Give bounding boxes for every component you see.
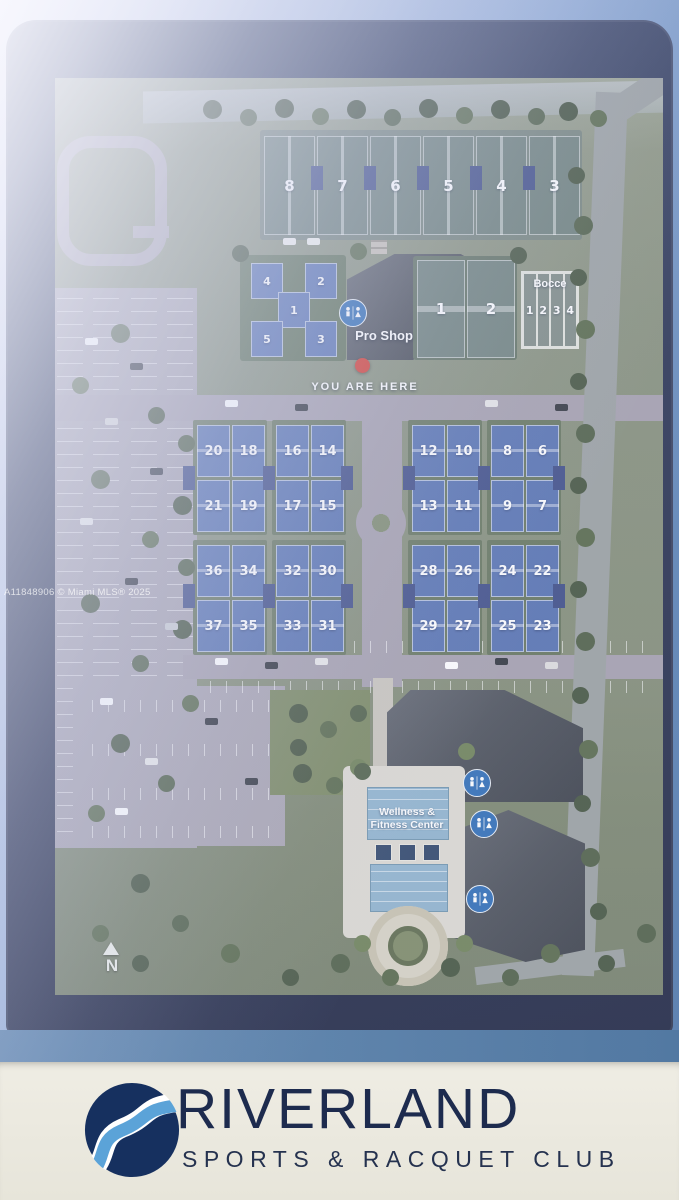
pickleball-court: 24 <box>491 545 524 597</box>
court-number: 13 <box>413 481 444 531</box>
tennis-court-pad-east: 1 2 <box>413 256 517 360</box>
tennis-court: 5 <box>423 136 474 235</box>
court-number: 26 <box>448 546 479 596</box>
tennis-court: 6 <box>370 136 421 235</box>
sign-base-strip <box>0 1030 679 1062</box>
restroom-icon <box>470 810 498 838</box>
wellness-center-label: Wellness & Fitness Center <box>347 806 467 832</box>
tennis-court: 1 <box>417 260 465 358</box>
court-number: 6 <box>371 137 420 234</box>
road-loop <box>57 136 167 266</box>
court-number: 7 <box>318 137 367 234</box>
court-number: 30 <box>312 546 343 596</box>
pickleball-court: 21 <box>197 480 230 532</box>
court-number: 24 <box>492 546 523 596</box>
pickleball-court: 23 <box>526 600 559 652</box>
bocce-label: Bocce <box>517 278 583 290</box>
parking-stripes <box>77 744 281 756</box>
pickleball-court: 15 <box>311 480 344 532</box>
tennis-court: 2 <box>467 260 515 358</box>
parking-stripes <box>77 826 281 838</box>
court-number: 19 <box>233 481 264 531</box>
pickleball-court: 12 <box>412 425 445 477</box>
pickleball-pad: 32 30 33 31 <box>272 540 346 655</box>
canal-band <box>143 81 663 124</box>
restroom-icon <box>463 769 491 797</box>
court-number: 23 <box>527 601 558 651</box>
pickleball-court: 22 <box>526 545 559 597</box>
pickleball-court: 32 <box>276 545 309 597</box>
pickleball-court: 19 <box>232 480 265 532</box>
court-number: 11 <box>448 481 479 531</box>
pickleball-court: 9 <box>491 480 524 532</box>
pickleball-court: 27 <box>447 600 480 652</box>
court-number: 12 <box>413 426 444 476</box>
tennis-court: 7 <box>317 136 368 235</box>
mls-watermark: A11848906 © Miami MLS® 2025 <box>4 587 151 598</box>
wellness-line1: Wellness & <box>347 806 467 819</box>
pickleball-court: 37 <box>197 600 230 652</box>
court-number: 6 <box>527 426 558 476</box>
you-are-here-label: YOU ARE HERE <box>305 381 425 393</box>
court-number: 28 <box>413 546 444 596</box>
main-road <box>55 395 663 421</box>
pickleball-court: 16 <box>276 425 309 477</box>
restroom-glyph <box>343 306 363 320</box>
tennis-court-pad-north: 8 7 6 5 4 3 <box>260 130 582 240</box>
restroom-icon <box>466 885 494 913</box>
court-number: 36 <box>198 546 229 596</box>
court-number: 5 <box>424 137 473 234</box>
pickleball-pad: 36 34 37 35 <box>193 540 267 655</box>
pickleball-court: 30 <box>311 545 344 597</box>
you-are-here-marker <box>355 358 370 373</box>
court-number: 3 <box>306 322 336 356</box>
stadium-court-pad: 4 2 1 5 3 <box>240 255 346 361</box>
pro-shop-label: Pro Shop <box>339 328 429 343</box>
parking-stripes <box>77 700 281 712</box>
roundabout <box>356 498 406 548</box>
court-number: 5 <box>252 322 282 356</box>
parking-stripes <box>77 788 281 800</box>
shade-structures <box>55 78 67 102</box>
tennis-court: 8 <box>264 136 315 235</box>
pickleball-court: 5 <box>251 321 283 357</box>
pickleball-pad: 12 10 13 11 <box>408 420 482 535</box>
pickleball-pad: 20 18 21 19 <box>193 420 267 535</box>
pickleball-court: 29 <box>412 600 445 652</box>
tennis-court: 4 <box>476 136 527 235</box>
pickleball-pad: 8 6 9 7 <box>487 420 561 535</box>
court-number: 31 <box>312 601 343 651</box>
pickleball-court: 6 <box>526 425 559 477</box>
north-arrow-icon <box>103 942 119 955</box>
logo-panel: RIVERLAND SPORTS & RACQUET CLUB <box>0 1062 679 1200</box>
pickleball-court: 8 <box>491 425 524 477</box>
pickleball-court: 14 <box>311 425 344 477</box>
court-number: 37 <box>198 601 229 651</box>
court-number: 4 <box>477 137 526 234</box>
court-number: 14 <box>312 426 343 476</box>
pickleball-court: 34 <box>232 545 265 597</box>
riverland-logo-icon <box>84 1082 180 1178</box>
north-label: N <box>97 956 127 976</box>
court-number: 10 <box>448 426 479 476</box>
court-number: 16 <box>277 426 308 476</box>
court-number: 8 <box>492 426 523 476</box>
court-number: 21 <box>198 481 229 531</box>
spa <box>399 844 416 861</box>
site-map: 8 7 6 5 4 3 4 2 1 5 3 Pro Shop 1 2 1 2 3… <box>55 78 663 995</box>
court-number: 7 <box>527 481 558 531</box>
court-number: 35 <box>233 601 264 651</box>
tennis-court: 3 <box>529 136 580 235</box>
pickleball-pad: 24 22 25 23 <box>487 540 561 655</box>
club-tagline: SPORTS & RACQUET CLUB <box>182 1146 642 1173</box>
court-number: 33 <box>277 601 308 651</box>
pickleball-court: 10 <box>447 425 480 477</box>
pickleball-court: 7 <box>526 480 559 532</box>
court-number: 32 <box>277 546 308 596</box>
court-number: 34 <box>233 546 264 596</box>
pickleball-court: 18 <box>232 425 265 477</box>
court-number: 17 <box>277 481 308 531</box>
court-number: 8 <box>265 137 314 234</box>
court-number: 29 <box>413 601 444 651</box>
pickleball-pad: 28 26 29 27 <box>408 540 482 655</box>
pickleball-court: 20 <box>197 425 230 477</box>
court-number: 20 <box>198 426 229 476</box>
wellness-line2: Fitness Center <box>347 819 467 832</box>
court-number: 2 <box>306 264 336 298</box>
road-stub <box>133 226 169 238</box>
court-number: 25 <box>492 601 523 651</box>
pickleball-court: 35 <box>232 600 265 652</box>
pickleball-court: 33 <box>276 600 309 652</box>
pickleball-court: 3 <box>305 321 337 357</box>
lap-pool-south <box>370 864 448 912</box>
plaza-garden <box>388 926 428 966</box>
pickleball-court: 17 <box>276 480 309 532</box>
court-number: 27 <box>448 601 479 651</box>
pickleball-court: 26 <box>447 545 480 597</box>
pickleball-court: 28 <box>412 545 445 597</box>
pickleball-pad: 16 14 17 15 <box>272 420 346 535</box>
court-number: 15 <box>312 481 343 531</box>
club-name: RIVERLAND <box>176 1076 646 1142</box>
court-number: 22 <box>527 546 558 596</box>
pickleball-court: 13 <box>412 480 445 532</box>
pickleball-court: 25 <box>491 600 524 652</box>
pickleball-court: 31 <box>311 600 344 652</box>
parking-lot-south <box>73 686 285 846</box>
court-number: 3 <box>530 137 579 234</box>
pickleball-court: 36 <box>197 545 230 597</box>
spa <box>375 844 392 861</box>
restroom-icon <box>339 299 367 327</box>
spa <box>423 844 440 861</box>
court-number: 2 <box>468 261 514 357</box>
court-number: 9 <box>492 481 523 531</box>
pickleball-court: 11 <box>447 480 480 532</box>
court-number: 18 <box>233 426 264 476</box>
